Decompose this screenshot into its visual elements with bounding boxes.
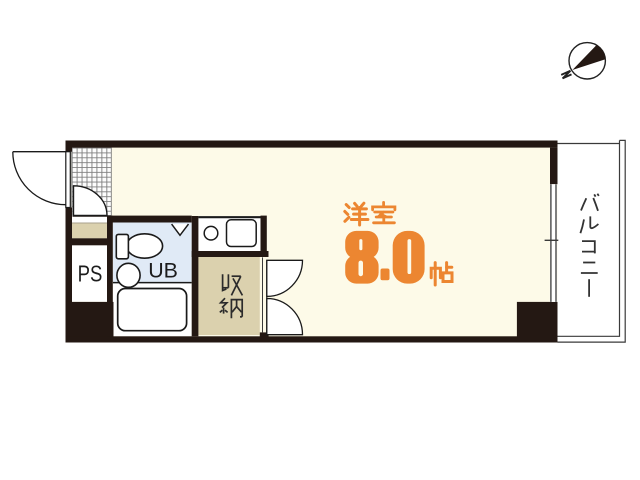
svg-text:PS: PS (78, 261, 103, 287)
svg-text:UB: UB (148, 259, 178, 283)
